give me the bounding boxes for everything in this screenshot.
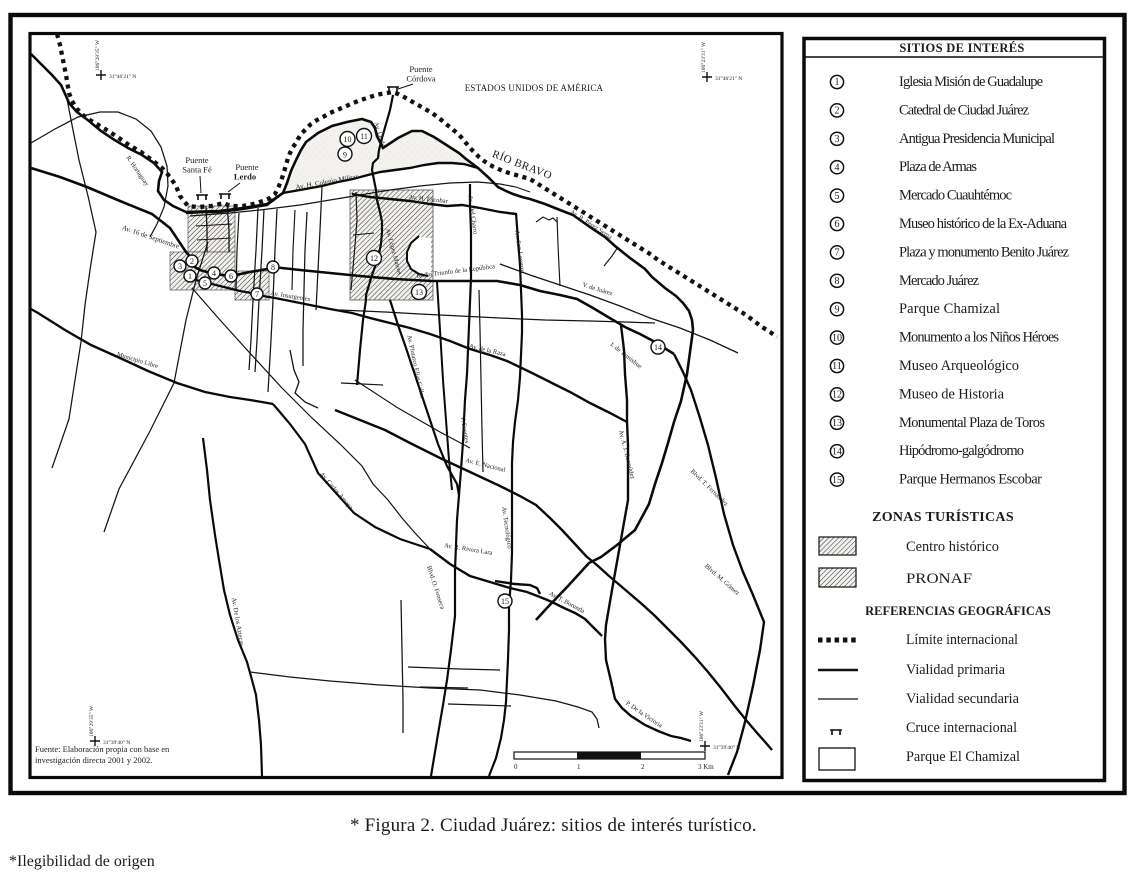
svg-text:31°46'21" N: 31°46'21" N bbox=[715, 75, 742, 82]
svg-text:7: 7 bbox=[835, 248, 840, 259]
svg-text:106°28'35" W: 106°28'35" W bbox=[94, 39, 101, 71]
svg-text:Vialidad secundaria: Vialidad secundaria bbox=[906, 691, 1020, 707]
svg-text:Puente: Puente bbox=[185, 155, 208, 165]
svg-text:Iglesia Misión de Guadalupe: Iglesia Misión de Guadalupe bbox=[899, 74, 1043, 90]
svg-text:Catedral de Ciudad Juárez: Catedral de Ciudad Juárez bbox=[899, 102, 1030, 118]
svg-text:*Ilegibilidad de origen: *Ilegibilidad de origen bbox=[9, 853, 155, 870]
svg-text:6: 6 bbox=[835, 219, 840, 230]
svg-text:31°46'21" N: 31°46'21" N bbox=[109, 73, 136, 80]
svg-text:Cruce internacional: Cruce internacional bbox=[906, 720, 1017, 736]
svg-text:5: 5 bbox=[835, 191, 840, 202]
svg-text:4: 4 bbox=[835, 162, 840, 173]
svg-text:Monumental Plaza de Toros: Monumental Plaza de Toros bbox=[899, 415, 1045, 431]
svg-text:10: 10 bbox=[832, 333, 842, 344]
svg-text:14: 14 bbox=[654, 343, 662, 352]
svg-text:11: 11 bbox=[832, 361, 842, 372]
svg-text:Parque El Chamizal: Parque El Chamizal bbox=[906, 749, 1020, 765]
svg-text:7: 7 bbox=[255, 290, 259, 299]
svg-text:1: 1 bbox=[835, 77, 840, 88]
svg-text:Plaza de Armas: Plaza de Armas bbox=[899, 159, 977, 175]
svg-text:14: 14 bbox=[832, 446, 842, 457]
svg-text:Centro histórico: Centro histórico bbox=[906, 539, 999, 555]
svg-text:Límite internacional: Límite internacional bbox=[906, 632, 1018, 648]
svg-text:3 Km: 3 Km bbox=[698, 763, 714, 771]
svg-text:Córdova: Córdova bbox=[406, 74, 436, 84]
svg-text:Mercado Cuauhtémoc: Mercado Cuauhtémoc bbox=[899, 188, 1012, 204]
svg-text:9: 9 bbox=[835, 304, 840, 315]
svg-text:1: 1 bbox=[577, 763, 581, 771]
svg-text:2: 2 bbox=[190, 257, 194, 266]
svg-text:3: 3 bbox=[835, 134, 840, 145]
svg-text:8: 8 bbox=[835, 276, 840, 287]
svg-text:15: 15 bbox=[832, 475, 842, 486]
svg-text:PRONAF: PRONAF bbox=[906, 571, 972, 587]
svg-text:Parque Chamizal: Parque Chamizal bbox=[899, 301, 1000, 317]
svg-text:8: 8 bbox=[271, 263, 275, 272]
svg-text:3: 3 bbox=[178, 262, 182, 271]
svg-text:Plaza y monumento Benito Juáre: Plaza y monumento Benito Juárez bbox=[899, 244, 1070, 260]
svg-text:Mercado Juárez: Mercado Juárez bbox=[899, 273, 980, 289]
svg-text:Antigua Presidencia Municipal: Antigua Presidencia Municipal bbox=[899, 131, 1055, 147]
svg-text:Fuente: Elaboración propia con: Fuente: Elaboración propia con base en bbox=[35, 744, 170, 754]
svg-text:Vialidad primaria: Vialidad primaria bbox=[906, 662, 1006, 678]
svg-text:Puente: Puente bbox=[235, 162, 258, 172]
svg-text:2: 2 bbox=[835, 106, 840, 117]
svg-text:13: 13 bbox=[415, 288, 423, 297]
svg-text:10: 10 bbox=[344, 135, 352, 144]
svg-text:13: 13 bbox=[832, 418, 842, 429]
svg-text:REFERENCIAS GEOGRÁFICAS: REFERENCIAS GEOGRÁFICAS bbox=[865, 604, 1051, 618]
svg-text:Museo histórico de la Ex-Aduan: Museo histórico de la Ex-Aduana bbox=[899, 216, 1068, 232]
svg-text:ESTADOS UNIDOS DE AMÉRICA: ESTADOS UNIDOS DE AMÉRICA bbox=[465, 83, 604, 93]
svg-text:106°23'31" W: 106°23'31" W bbox=[700, 41, 707, 73]
svg-text:106°29'35" W: 106°29'35" W bbox=[88, 705, 95, 737]
svg-text:5: 5 bbox=[203, 279, 207, 288]
svg-text:Museo Arqueológico: Museo Arqueológico bbox=[899, 358, 1019, 374]
svg-text:12: 12 bbox=[370, 254, 378, 263]
svg-text:31°39'40" N: 31°39'40" N bbox=[713, 744, 740, 751]
svg-text:investigación directa 2001 y 2: investigación directa 2001 y 2002. bbox=[35, 755, 152, 765]
svg-text:Parque Hermanos Escobar: Parque Hermanos Escobar bbox=[899, 472, 1042, 488]
svg-text:Santa Fé: Santa Fé bbox=[182, 165, 212, 175]
svg-text:Monumento a los Niños Héroes: Monumento a los Niños Héroes bbox=[899, 330, 1059, 346]
svg-text:11: 11 bbox=[360, 132, 368, 141]
svg-text:Museo de Historia: Museo de Historia bbox=[899, 386, 1005, 402]
svg-text:15: 15 bbox=[501, 597, 509, 606]
svg-text:12: 12 bbox=[832, 390, 842, 401]
svg-text:Lerdo: Lerdo bbox=[234, 172, 256, 182]
svg-text:SITIOS DE INTERÉS: SITIOS DE INTERÉS bbox=[899, 41, 1024, 55]
svg-text:6: 6 bbox=[229, 272, 233, 281]
svg-text:Hipódromo-galgódromo: Hipódromo-galgódromo bbox=[899, 443, 1024, 459]
svg-text:0: 0 bbox=[514, 763, 518, 771]
svg-text:9: 9 bbox=[343, 151, 347, 160]
svg-text:* Figura 2. Ciudad Juárez: sit: * Figura 2. Ciudad Juárez: sitios de int… bbox=[350, 815, 757, 836]
svg-text:2: 2 bbox=[641, 763, 645, 771]
svg-text:ZONAS TURÍSTICAS: ZONAS TURÍSTICAS bbox=[872, 508, 1014, 525]
svg-text:Puente: Puente bbox=[409, 64, 432, 74]
svg-text:4: 4 bbox=[212, 269, 216, 278]
svg-text:1: 1 bbox=[188, 272, 192, 281]
svg-text:106°23'31" W: 106°23'31" W bbox=[698, 710, 705, 742]
